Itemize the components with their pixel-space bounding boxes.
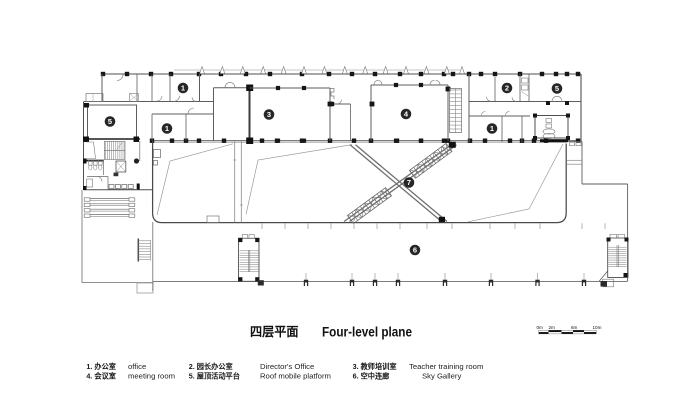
svg-text:2m: 2m (549, 325, 556, 330)
svg-text:四层平面: 四层平面 (250, 325, 299, 339)
svg-text:1: 1 (181, 84, 185, 93)
svg-text:5: 5 (108, 117, 112, 126)
svg-text:6: 6 (413, 246, 417, 255)
svg-text:10m: 10m (593, 325, 602, 330)
svg-text:7: 7 (407, 178, 411, 187)
svg-text:2: 2 (505, 84, 509, 93)
svg-text:Four-level plane: Four-level plane (322, 325, 412, 340)
svg-text:Roof mobile platform: Roof mobile platform (260, 371, 331, 380)
svg-text:Sky Gallery: Sky Gallery (422, 371, 461, 380)
svg-text:6m: 6m (571, 325, 578, 330)
svg-text:3: 3 (267, 110, 271, 119)
svg-text:2. 园长办公室: 2. 园长办公室 (189, 362, 233, 371)
svg-text:5. 屋顶活动平台: 5. 屋顶活动平台 (189, 371, 240, 380)
svg-text:meeting room: meeting room (128, 371, 175, 380)
svg-text:4. 会议室: 4. 会议室 (86, 371, 116, 380)
svg-text:0m: 0m (537, 325, 544, 330)
svg-text:1: 1 (490, 124, 494, 133)
svg-text:1: 1 (165, 124, 169, 133)
svg-text:6. 空中连廊: 6. 空中连廊 (353, 371, 390, 380)
svg-text:1. 办公室: 1. 办公室 (86, 362, 116, 371)
svg-text:3. 教师培训室: 3. 教师培训室 (353, 362, 397, 371)
svg-text:Director's Office: Director's Office (260, 362, 314, 371)
svg-text:Teacher training room: Teacher training room (409, 362, 483, 371)
svg-text:office: office (128, 362, 146, 371)
svg-text:5: 5 (555, 84, 559, 93)
